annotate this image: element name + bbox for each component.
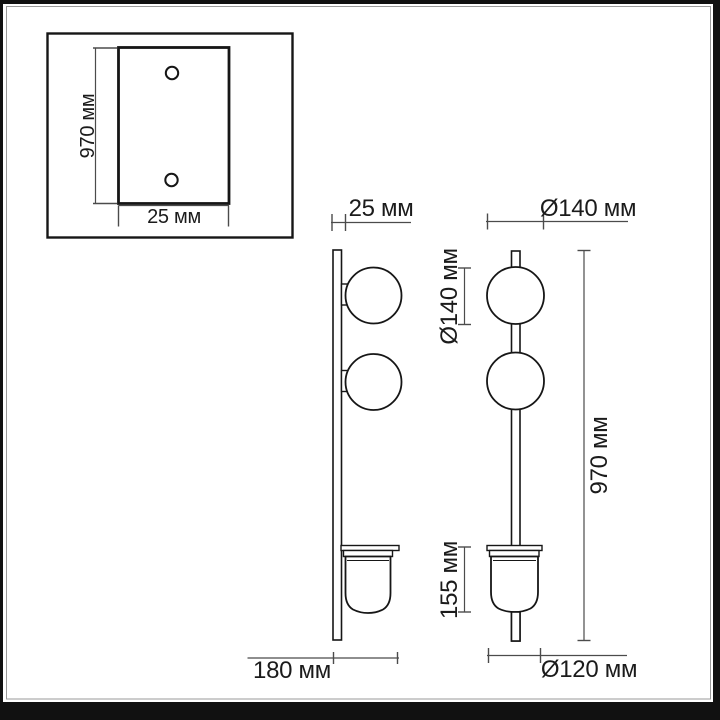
dim-label-plate-width: 25 мм (147, 206, 201, 228)
shade-flange-side (341, 546, 399, 551)
lamp-front-view: Ø140 мм 970 мм Ø120 мм (486, 195, 637, 683)
dim-label-plate-height: 970 мм (77, 94, 99, 159)
shade-flange-front (487, 546, 542, 551)
dim-label-shade-height: 155 мм (436, 541, 463, 619)
dim-label-globe-diameter-side: Ø140 мм (436, 248, 463, 344)
frame-top (0, 0, 720, 4)
wall-strip-side (333, 250, 342, 640)
shade-cup-front (491, 557, 538, 613)
mounting-hole-top (166, 67, 178, 79)
dim-label-plate-depth: 25 мм (349, 195, 414, 222)
globe-lower-side (346, 354, 402, 410)
mounting-hole-bottom (165, 174, 177, 186)
backplate-inset-view: 970 мм 25 мм (48, 34, 293, 238)
lamp-dimension-drawing: 970 мм 25 мм 25 мм Ø140 мм 155 мм 180 мм (0, 0, 720, 720)
globe-upper-front (487, 267, 544, 324)
globe-upper-side (346, 268, 402, 324)
stem-rod-tip-front (512, 612, 521, 641)
shade-cup-side (346, 557, 391, 614)
dim-label-shade-diameter: Ø120 мм (541, 656, 637, 683)
dim-label-globe-diameter-front: Ø140 мм (540, 195, 636, 222)
dim-label-wall-projection: 180 мм (253, 657, 331, 684)
lamp-side-view: 25 мм Ø140 мм 155 мм 180 мм (248, 195, 472, 684)
globe-lower-front (487, 353, 544, 410)
frame-left (0, 0, 3, 720)
frame-bottom (0, 702, 720, 720)
drawing-svg: 970 мм 25 мм 25 мм Ø140 мм 155 мм 180 мм (0, 0, 720, 720)
dim-label-total-height: 970 мм (586, 417, 613, 495)
frame-right (713, 0, 720, 720)
